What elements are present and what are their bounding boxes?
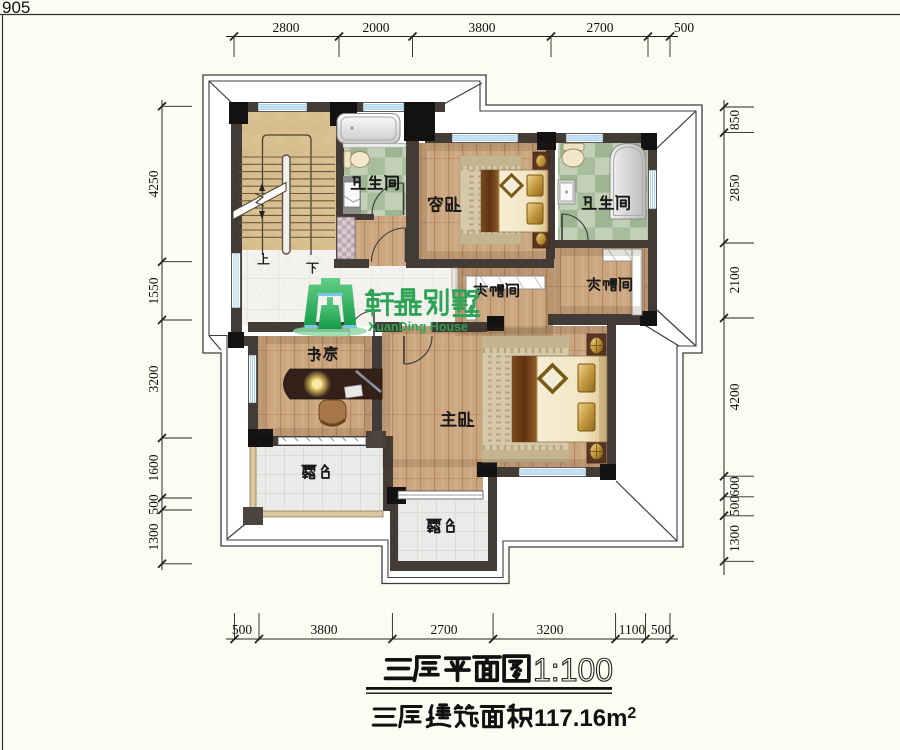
svg-text:4200: 4200 [727, 383, 742, 410]
svg-text:3800: 3800 [469, 20, 496, 35]
svg-text:2850: 2850 [727, 174, 742, 201]
svg-text:905: 905 [2, 0, 30, 17]
svg-text:500: 500 [232, 622, 253, 637]
svg-text:500: 500 [146, 494, 161, 515]
svg-text:500: 500 [727, 496, 742, 517]
svg-text:850: 850 [727, 110, 742, 131]
svg-text:2800: 2800 [273, 20, 300, 35]
svg-text:500: 500 [674, 20, 695, 35]
svg-text:3200: 3200 [146, 365, 161, 392]
svg-text:117.16m2: 117.16m2 [534, 705, 636, 732]
svg-text:2700: 2700 [431, 622, 458, 637]
svg-text:2100: 2100 [727, 266, 742, 293]
svg-text:1600: 1600 [146, 454, 161, 481]
svg-text:XuanDing House: XuanDing House [368, 320, 468, 334]
svg-text:600: 600 [727, 476, 742, 497]
svg-text:1300: 1300 [146, 523, 161, 550]
svg-text:4250: 4250 [146, 170, 161, 197]
svg-text:2000: 2000 [363, 20, 390, 35]
svg-text:1300: 1300 [727, 525, 742, 552]
svg-text:500: 500 [651, 622, 672, 637]
svg-text:1550: 1550 [146, 277, 161, 304]
svg-text:3200: 3200 [537, 622, 564, 637]
svg-text:3800: 3800 [311, 622, 338, 637]
svg-text:1100: 1100 [619, 622, 646, 637]
svg-text:1:100: 1:100 [533, 652, 613, 688]
svg-text:2700: 2700 [587, 20, 614, 35]
